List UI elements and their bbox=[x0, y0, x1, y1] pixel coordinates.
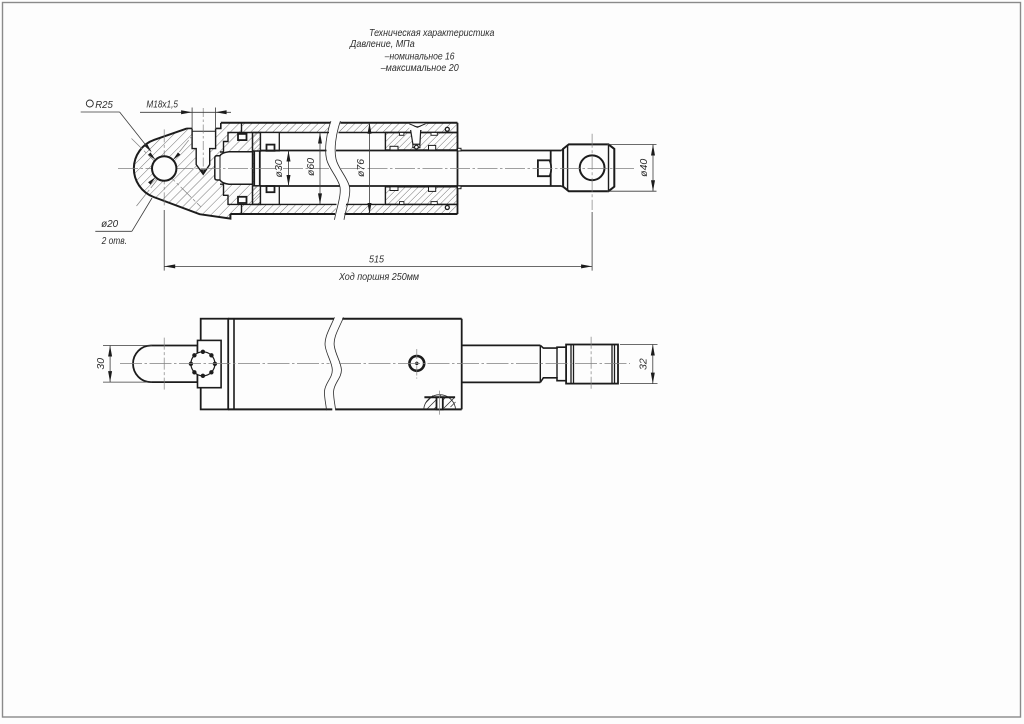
svg-text:M18x1,5: M18x1,5 bbox=[146, 98, 178, 110]
svg-text:ø76: ø76 bbox=[355, 159, 367, 177]
svg-text:Ход поршня 250мм: Ход поршня 250мм bbox=[338, 271, 419, 283]
svg-text:Давление, МПа: Давление, МПа bbox=[349, 38, 415, 50]
svg-text:–номинальное 16: –номинальное 16 bbox=[384, 50, 455, 62]
svg-text:2 отв.: 2 отв. bbox=[101, 235, 127, 247]
svg-text:ø60: ø60 bbox=[305, 158, 317, 176]
svg-text:R25: R25 bbox=[95, 99, 113, 111]
svg-text:32: 32 bbox=[638, 358, 650, 370]
svg-text:515: 515 bbox=[369, 254, 384, 266]
svg-text:Техническая характеристика: Техническая характеристика bbox=[369, 27, 495, 39]
svg-text:ø20: ø20 bbox=[101, 218, 118, 230]
svg-text:ø30: ø30 bbox=[273, 159, 285, 177]
svg-text:–максимальное 20: –максимальное 20 bbox=[380, 62, 459, 74]
svg-text:ø40: ø40 bbox=[638, 159, 650, 177]
svg-text:30: 30 bbox=[95, 358, 107, 370]
